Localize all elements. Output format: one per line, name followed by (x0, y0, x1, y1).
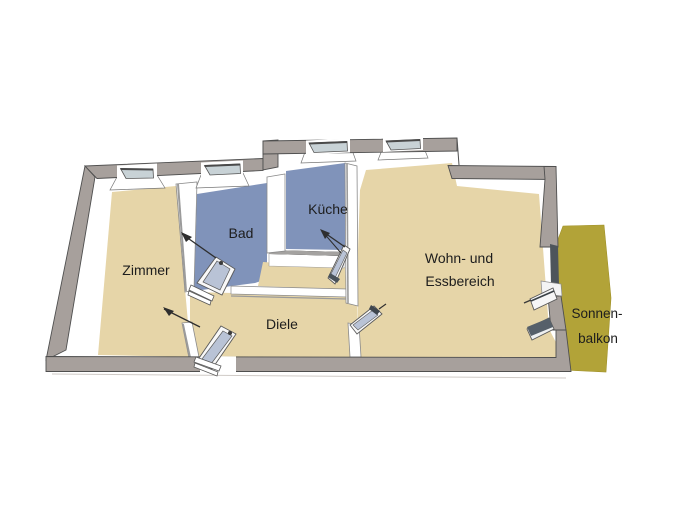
svg-text:Sonnen-: Sonnen- (571, 306, 622, 321)
svg-text:Essbereich: Essbereich (425, 273, 494, 289)
svg-text:Zimmer: Zimmer (122, 262, 170, 278)
svg-text:Diele: Diele (266, 316, 298, 332)
svg-text:balkon: balkon (578, 331, 618, 346)
svg-text:Küche: Küche (308, 201, 348, 217)
svg-text:Bad: Bad (229, 225, 254, 241)
svg-text:Wohn- und: Wohn- und (425, 250, 493, 266)
